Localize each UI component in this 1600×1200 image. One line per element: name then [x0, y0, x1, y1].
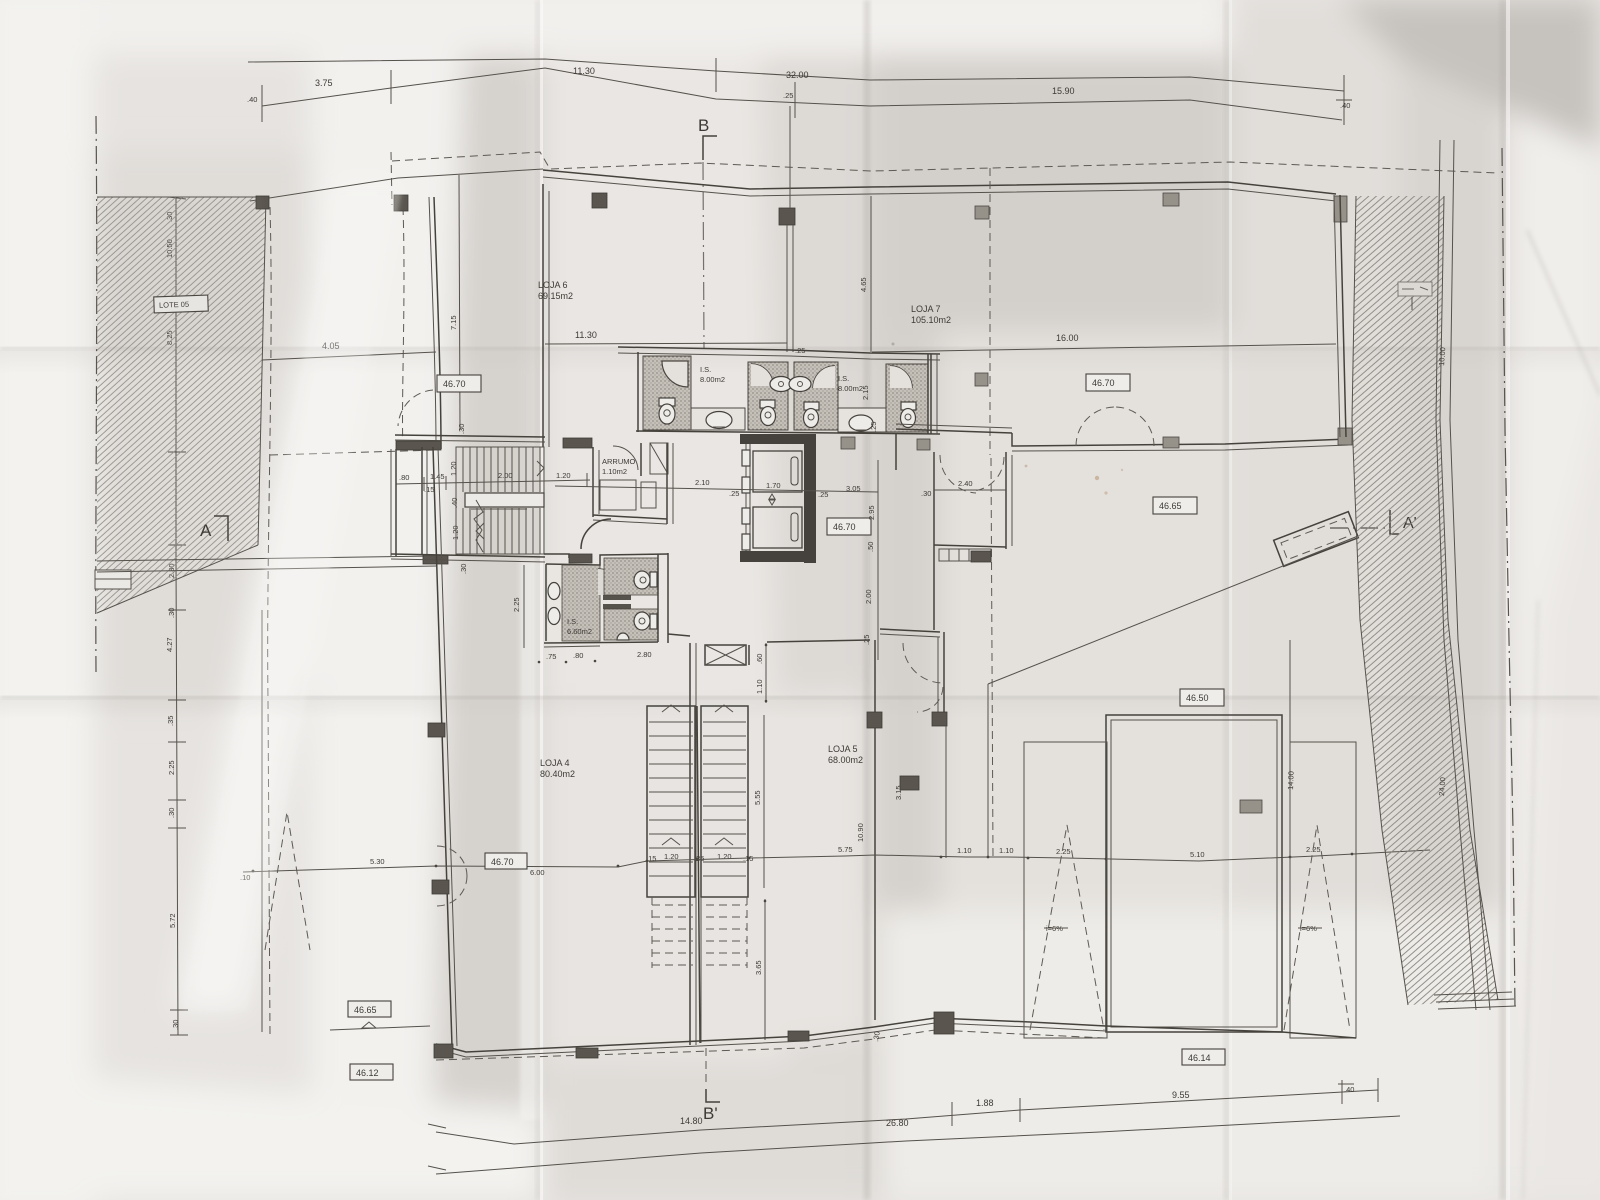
svg-text:16.00: 16.00 [1056, 333, 1079, 343]
svg-text:.40: .40 [1344, 1085, 1354, 1094]
svg-text:32.00: 32.00 [786, 70, 809, 80]
svg-text:8.00m2: 8.00m2 [838, 384, 863, 393]
svg-text:2.95: 2.95 [867, 505, 876, 520]
svg-text:46.70: 46.70 [491, 857, 514, 867]
svg-text:1.20: 1.20 [451, 525, 460, 540]
svg-text:69.15m2: 69.15m2 [538, 291, 573, 301]
svg-text:1.88: 1.88 [976, 1098, 994, 1108]
svg-text:9.55: 9.55 [1172, 1090, 1190, 1100]
svg-text:5.75: 5.75 [838, 845, 853, 854]
svg-text:LOJA 4: LOJA 4 [540, 758, 570, 768]
svg-text:6.00: 6.00 [530, 868, 545, 877]
svg-text:ARRUMO: ARRUMO [602, 457, 635, 466]
svg-text:26.80: 26.80 [886, 1118, 909, 1128]
svg-text:2.25: 2.25 [512, 597, 521, 612]
svg-text:8.00m2: 8.00m2 [700, 375, 725, 384]
svg-text:.30: .30 [167, 808, 176, 818]
svg-text:.25: .25 [795, 346, 805, 355]
svg-text:.25: .25 [783, 91, 793, 100]
svg-text:3.05: 3.05 [846, 484, 861, 493]
svg-text:46.70: 46.70 [443, 379, 466, 389]
svg-text:7.15: 7.15 [449, 315, 458, 330]
svg-text:1.20: 1.20 [556, 471, 571, 480]
svg-text:2.25: 2.25 [1056, 847, 1071, 856]
svg-text:B: B [698, 116, 709, 135]
svg-text:LOJA 5: LOJA 5 [828, 744, 858, 754]
svg-text:80.40m2: 80.40m2 [540, 769, 575, 779]
svg-text:.35: .35 [166, 716, 175, 726]
svg-text:.50: .50 [866, 542, 875, 552]
svg-text:68.00m2: 68.00m2 [828, 755, 863, 765]
svg-text:2.40: 2.40 [958, 479, 973, 488]
svg-text:46.65: 46.65 [354, 1005, 377, 1015]
svg-text:14.80: 14.80 [680, 1116, 703, 1126]
svg-text:1.45: 1.45 [430, 472, 445, 481]
svg-text:11.30: 11.30 [575, 330, 597, 340]
svg-text:14.00: 14.00 [1286, 771, 1296, 790]
svg-text:1.20: 1.20 [449, 461, 458, 476]
svg-text:.30: .30 [459, 564, 468, 574]
svg-text:1.10m2: 1.10m2 [602, 467, 627, 476]
svg-text:.15: .15 [424, 485, 434, 494]
svg-text:46.65: 46.65 [1159, 501, 1182, 511]
svg-text:46.12: 46.12 [356, 1068, 379, 1078]
svg-text:B': B' [703, 1104, 718, 1123]
svg-text:24.00: 24.00 [1437, 777, 1447, 796]
svg-text:.25: .25 [694, 854, 704, 863]
svg-text:46.50: 46.50 [1186, 693, 1209, 703]
svg-text:2.10: 2.10 [695, 478, 710, 487]
svg-text:5.55: 5.55 [753, 790, 762, 805]
svg-text:2.25: 2.25 [167, 760, 176, 775]
svg-text:.40: .40 [450, 498, 459, 508]
svg-text:105.10m2: 105.10m2 [911, 315, 951, 325]
svg-text:A: A [200, 521, 212, 540]
svg-text:I.S.: I.S. [838, 374, 849, 383]
svg-text:.25: .25 [818, 490, 828, 499]
svg-text:1.10: 1.10 [999, 846, 1014, 855]
svg-text:46.70: 46.70 [1092, 378, 1115, 388]
svg-text:.30: .30 [871, 1031, 882, 1043]
svg-text:.25: .25 [869, 422, 878, 432]
svg-text:.25: .25 [729, 489, 739, 498]
svg-text:.30: .30 [171, 1020, 180, 1030]
svg-text:.40: .40 [1340, 101, 1350, 110]
svg-text:1.20: 1.20 [717, 852, 732, 861]
svg-text:.60: .60 [755, 654, 764, 664]
svg-text:LOJA 6: LOJA 6 [538, 280, 568, 290]
svg-text:.80: .80 [399, 473, 409, 482]
svg-text:1.70: 1.70 [766, 481, 781, 490]
svg-text:46.14: 46.14 [1188, 1053, 1211, 1063]
svg-text:3.65: 3.65 [754, 960, 763, 975]
svg-text:5.72: 5.72 [168, 913, 177, 928]
svg-text:I.S.: I.S. [700, 365, 711, 374]
svg-text:.40: .40 [247, 95, 257, 104]
svg-text:I.S.: I.S. [567, 617, 578, 626]
svg-text:3.75: 3.75 [315, 78, 333, 88]
svg-text:10.00: 10.00 [1437, 347, 1447, 366]
svg-text:5.10: 5.10 [1190, 850, 1205, 859]
svg-text:LOJA 7: LOJA 7 [911, 304, 941, 314]
svg-text:1.10: 1.10 [755, 679, 764, 694]
svg-text:6.60m2: 6.60m2 [567, 627, 592, 636]
svg-text:.75: .75 [546, 652, 556, 661]
svg-text:2.00: 2.00 [864, 589, 873, 604]
svg-text:1.10: 1.10 [957, 846, 972, 855]
svg-text:46.70: 46.70 [833, 522, 856, 532]
svg-text:15.90: 15.90 [1052, 86, 1075, 96]
svg-text:2.15: 2.15 [861, 385, 870, 400]
svg-text:.30: .30 [457, 424, 466, 434]
svg-text:11.30: 11.30 [573, 66, 595, 76]
svg-text:.80: .80 [573, 651, 583, 660]
svg-text:.30: .30 [167, 608, 176, 618]
svg-text:2.00: 2.00 [498, 471, 513, 480]
svg-text:2.80: 2.80 [637, 650, 652, 659]
svg-text:4.27: 4.27 [165, 637, 174, 652]
svg-text:.30: .30 [921, 489, 931, 498]
svg-text:4.65: 4.65 [859, 277, 868, 292]
svg-text:5.30: 5.30 [370, 857, 385, 866]
svg-text:10.90: 10.90 [856, 823, 865, 842]
